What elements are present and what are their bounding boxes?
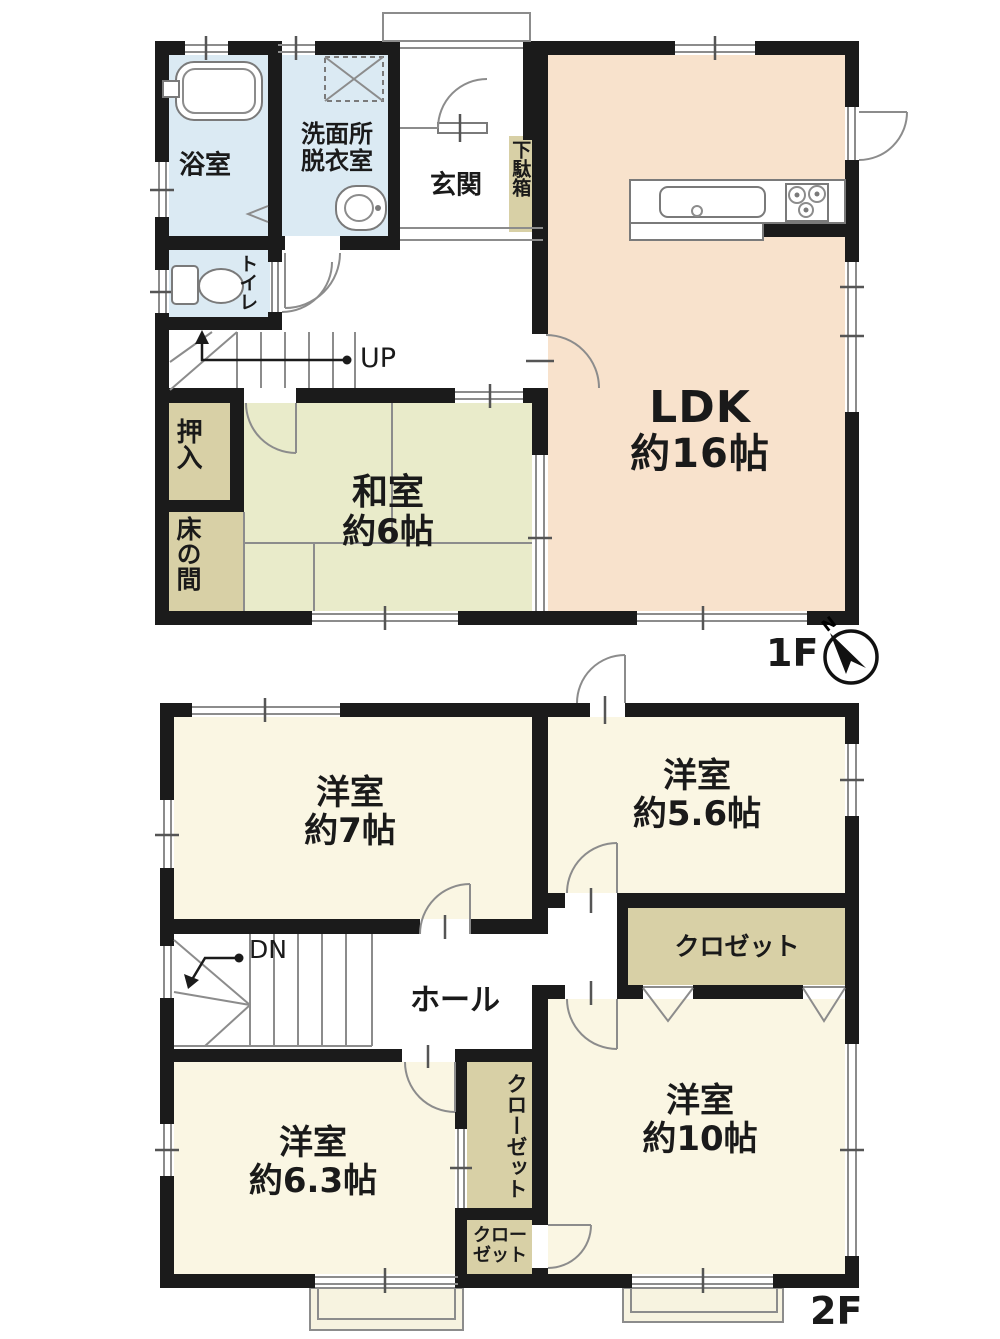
label-tokonoma: 床の間 (173, 516, 201, 608)
label-washroom-line1: 洗面所 (301, 121, 373, 148)
label-bedroom7-size: 約7帖 (304, 812, 396, 850)
label-washitsu-size: 約6帖 (342, 513, 434, 551)
window-stairs-left (164, 946, 171, 998)
label-closet-tall: クローゼット (467, 1072, 531, 1200)
label-bedroom56-name: 洋室 (633, 757, 761, 795)
label-shoe-cabinet: 下駄箱 (509, 140, 530, 232)
floor-plan-page: N (0, 0, 1000, 1339)
label-ldk: LDK 約16帖 (630, 383, 770, 477)
label-washroom-line2: 脱衣室 (301, 148, 373, 175)
label-bedroom10-name: 洋室 (642, 1082, 757, 1120)
label-closet-small: クロー ゼット (473, 1226, 527, 1266)
entrance-porch (383, 13, 530, 41)
stairs-down-arrow (184, 954, 244, 990)
label-closet-small-line2: ゼット (473, 1246, 527, 1266)
label-stairs-dn: DN (249, 936, 287, 964)
bay-right (623, 1288, 783, 1322)
washroom-door (285, 253, 340, 308)
label-floor-1f: 1F (766, 632, 818, 675)
label-toilet: トイレ (236, 254, 257, 318)
kitchen-sink (660, 187, 765, 217)
bath-faucet (163, 81, 179, 97)
wash-basin (336, 186, 386, 230)
label-bedroom7-name: 洋室 (304, 774, 396, 812)
label-ldk-size: 約16帖 (630, 432, 770, 477)
compass-needle (830, 633, 866, 674)
label-bedroom63: 洋室 約6.3帖 (249, 1124, 377, 1200)
label-bedroom10-size: 約10帖 (642, 1120, 757, 1158)
toilet-fixture (172, 266, 243, 304)
label-floor-2f: 2F (810, 1290, 862, 1333)
stairs-1f (170, 330, 355, 390)
label-bedroom56: 洋室 約5.6帖 (633, 757, 761, 833)
label-bedroom56-size: 約5.6帖 (633, 795, 761, 833)
label-entrance: 玄関 (430, 171, 482, 200)
label-washroom: 洗面所 脱衣室 (301, 121, 373, 175)
label-bedroom10: 洋室 約10帖 (642, 1082, 757, 1158)
room-ldk (548, 55, 845, 611)
label-bedroom7: 洋室 約7帖 (304, 774, 396, 850)
label-stairs-up: UP (360, 344, 396, 374)
bay-left (310, 1288, 463, 1330)
label-closet-2f: クロゼット (674, 933, 799, 961)
label-bedroom63-size: 約6.3帖 (249, 1162, 377, 1200)
entrance-door (400, 79, 487, 142)
ldk-back-door (848, 107, 907, 160)
label-bedroom63-name: 洋室 (249, 1124, 377, 1162)
label-washitsu-name: 和室 (342, 473, 434, 513)
kitchen-stove (786, 184, 828, 221)
label-bath: 浴室 (179, 151, 231, 180)
label-washitsu: 和室 約6帖 (342, 473, 434, 551)
label-oshiire: 押入 (172, 418, 201, 496)
label-closet-small-line1: クロー (473, 1226, 527, 1246)
label-hall: ホール (410, 984, 500, 1018)
label-ldk-name: LDK (630, 383, 770, 432)
